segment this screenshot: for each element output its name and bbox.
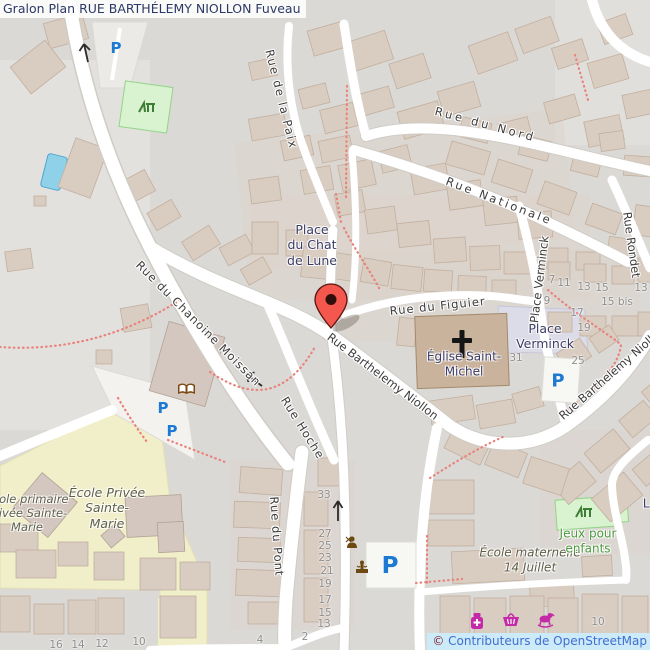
parking-icon: P <box>382 553 399 579</box>
house-number: 2 <box>302 631 309 643</box>
house-number: 25 <box>318 540 331 552</box>
house-number: 17 <box>318 594 331 606</box>
playground-area-north <box>119 81 173 133</box>
house-number: 15 <box>595 282 608 294</box>
house-number: 21 <box>320 565 333 577</box>
house-number: 17 <box>570 307 583 319</box>
house-number: 13 <box>317 618 330 630</box>
house-number: 19 <box>318 578 331 590</box>
parking-icon: P <box>158 399 169 417</box>
house-number: 10 <box>132 636 145 648</box>
house-number: 33 <box>317 489 330 501</box>
house-number: 7 <box>549 274 556 286</box>
house-number: 27 <box>318 528 331 540</box>
house-number: 19 <box>577 322 590 334</box>
house-number: 23 <box>318 552 331 564</box>
parking-icon: P <box>167 422 178 440</box>
house-number: 13 <box>577 281 590 293</box>
house-number: 4 <box>257 634 264 646</box>
house-number: 14 <box>71 639 84 650</box>
house-number: 31 <box>509 352 522 364</box>
map-canvas[interactable]: Rue de la Paix Rue du Nord Rue Nationale… <box>0 0 650 650</box>
attribution-link[interactable]: Contributeurs de OpenStreetMap <box>444 634 647 648</box>
parking-icon: P <box>111 39 122 57</box>
copyright-symbol: © <box>432 634 444 648</box>
page-title: Gralon Plan RUE BARTHÉLEMY NIOLLON Fuvea… <box>0 0 306 18</box>
house-number: 13 <box>634 282 647 294</box>
oneway-arrow-icon <box>246 373 262 387</box>
house-number: 25 <box>571 355 584 367</box>
house-number: 15 bis <box>601 296 633 308</box>
house-number: 12 <box>95 638 108 650</box>
house-number: 10 <box>591 616 604 628</box>
parking-icon: P <box>551 371 564 392</box>
house-number: 16 <box>49 639 62 650</box>
church-building <box>415 313 509 388</box>
house-number: 9 <box>544 295 551 307</box>
attribution[interactable]: © Contributeurs de OpenStreetMap <box>427 633 650 650</box>
library-icon <box>178 384 195 395</box>
house-number: 11 <box>557 277 570 289</box>
